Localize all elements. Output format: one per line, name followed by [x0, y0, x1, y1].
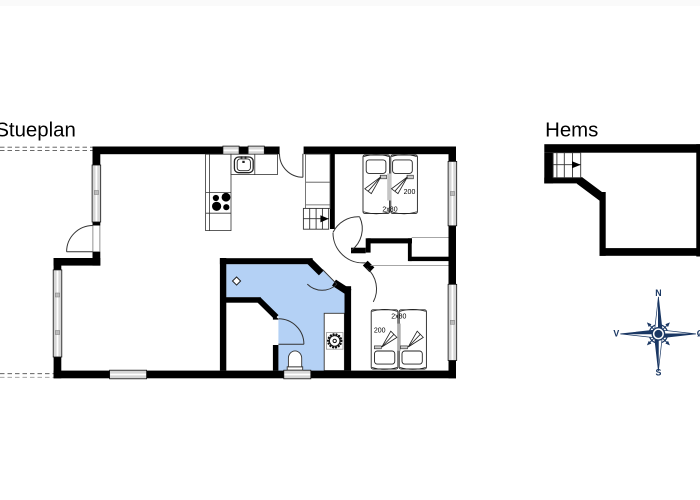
svg-text:Stueplan: Stueplan	[0, 119, 76, 141]
svg-text:Hems: Hems	[545, 120, 598, 142]
svg-text:2x80: 2x80	[391, 313, 406, 320]
svg-text:V: V	[613, 329, 619, 339]
svg-text:200: 200	[374, 328, 386, 335]
svg-text:S: S	[655, 368, 661, 378]
svg-text:200: 200	[404, 189, 416, 196]
svg-text:2x80: 2x80	[382, 207, 397, 214]
svg-text:N: N	[655, 288, 661, 298]
